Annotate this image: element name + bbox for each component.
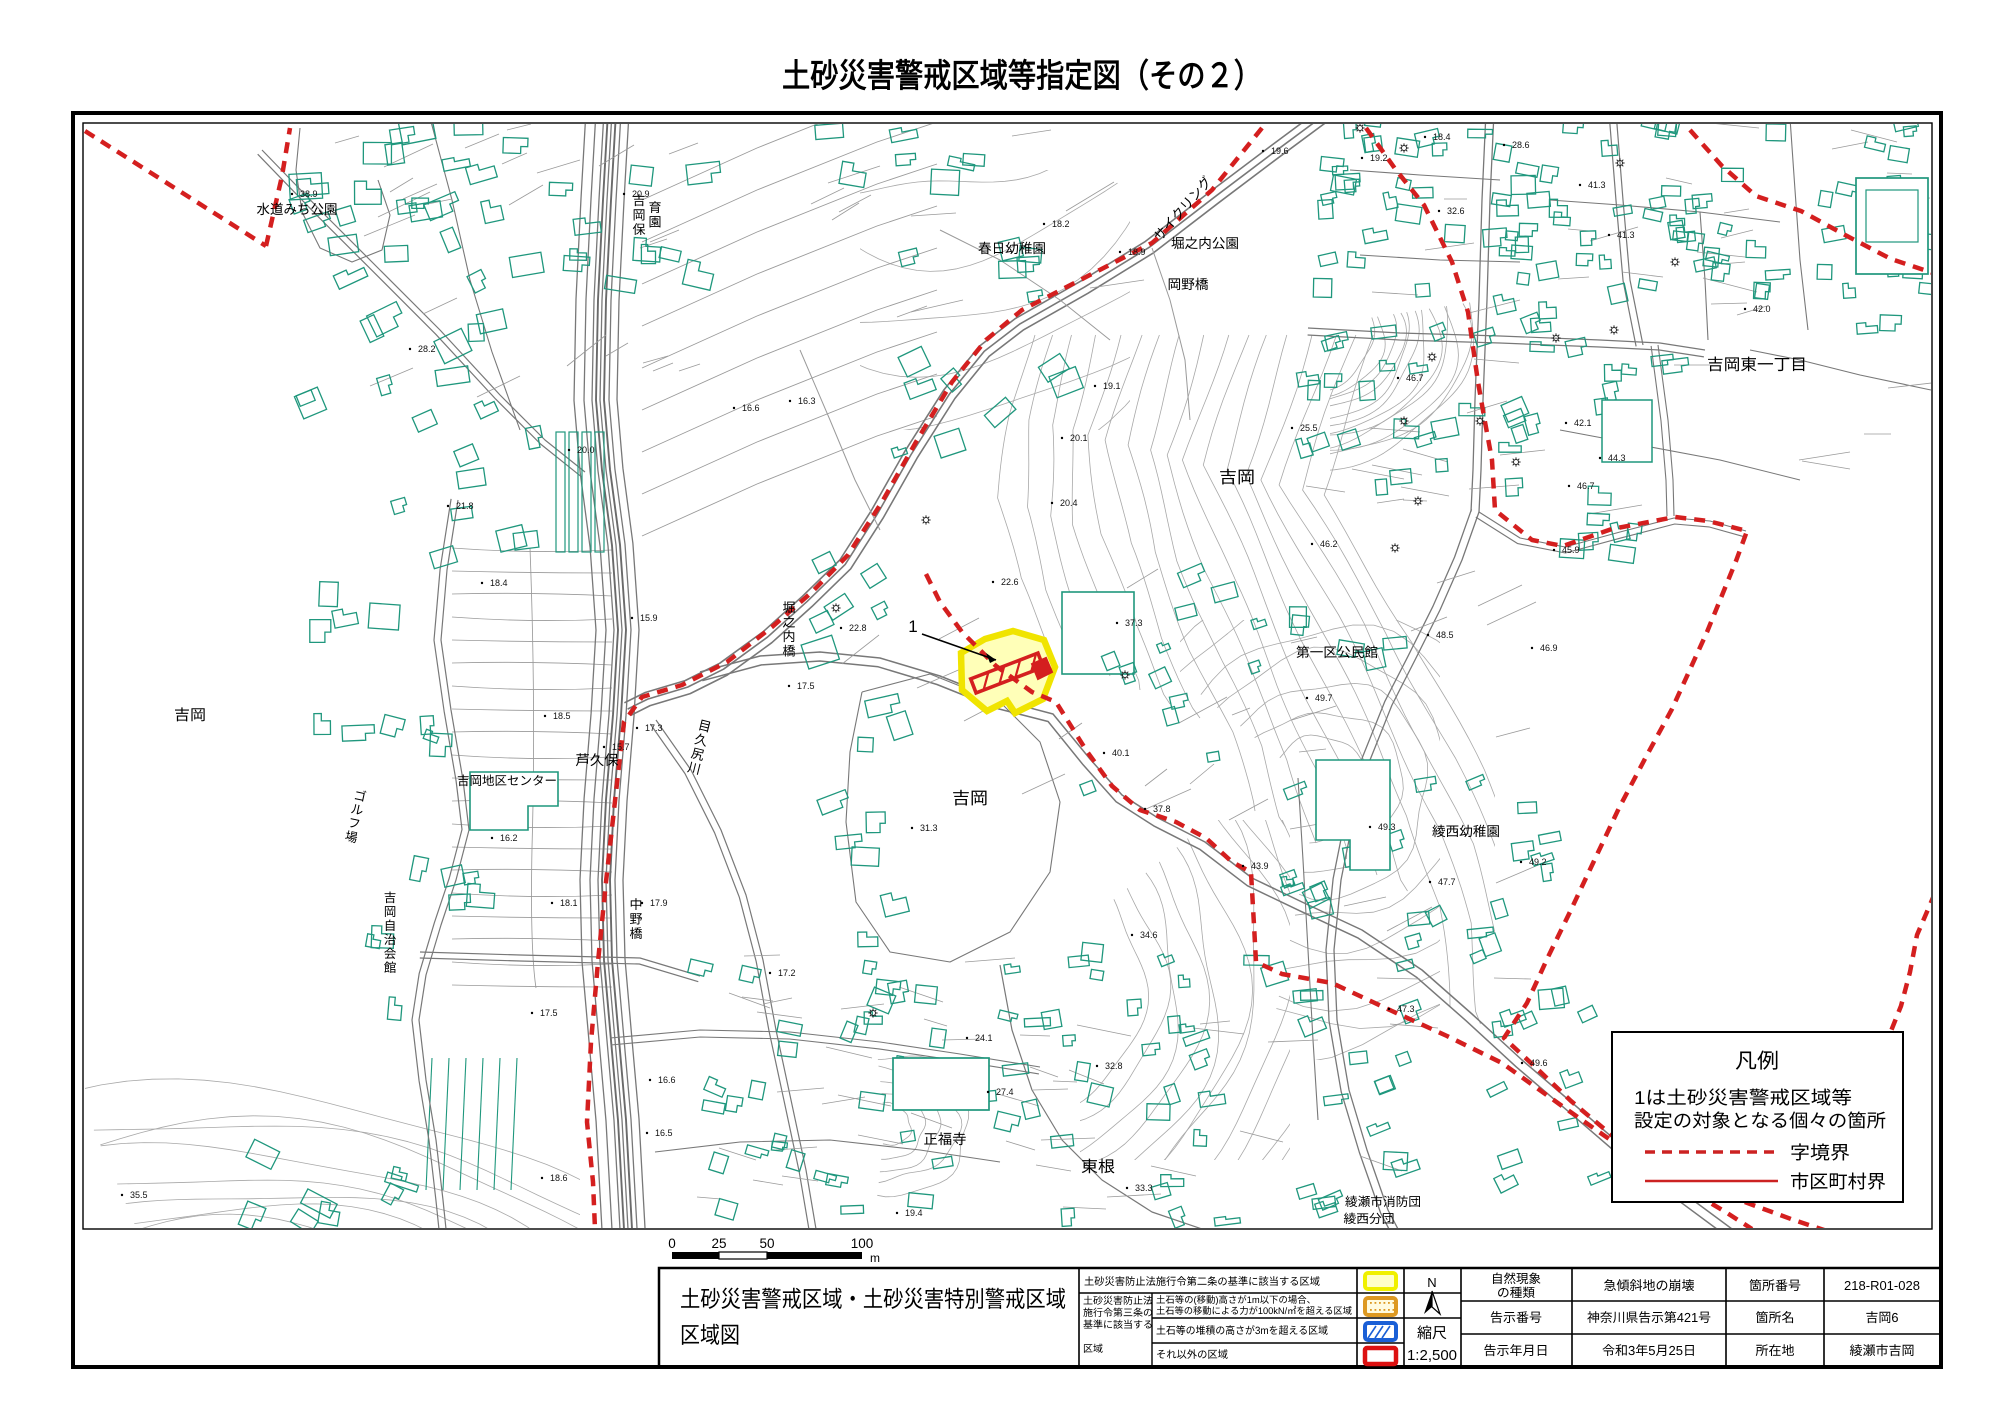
svg-text:18.4: 18.4 xyxy=(490,578,508,588)
svg-text:18.9: 18.9 xyxy=(1128,247,1146,257)
svg-text:19.2: 19.2 xyxy=(1370,153,1388,163)
svg-text:19.6: 19.6 xyxy=(1271,146,1289,156)
svg-text:17.3: 17.3 xyxy=(645,723,663,733)
svg-text:46.9: 46.9 xyxy=(1540,643,1558,653)
svg-text:43.9: 43.9 xyxy=(1251,861,1269,871)
svg-text:49.6: 49.6 xyxy=(1530,1058,1548,1068)
svg-text:24.1: 24.1 xyxy=(975,1033,993,1043)
svg-text:18.4: 18.4 xyxy=(1433,132,1451,142)
svg-text:17.2: 17.2 xyxy=(778,968,796,978)
svg-text:38.9: 38.9 xyxy=(300,189,318,199)
svg-text:41.3: 41.3 xyxy=(1588,180,1606,190)
svg-text:28.6: 28.6 xyxy=(1512,140,1530,150)
svg-text:22.8: 22.8 xyxy=(849,623,867,633)
svg-text:37.8: 37.8 xyxy=(1153,804,1171,814)
svg-text:31.3: 31.3 xyxy=(920,823,938,833)
svg-text:18.5: 18.5 xyxy=(553,711,571,721)
svg-text:0: 0 xyxy=(668,1236,676,1251)
svg-text:N: N xyxy=(1427,1275,1436,1290)
svg-text:15.7: 15.7 xyxy=(612,742,630,752)
svg-text:48.5: 48.5 xyxy=(1436,630,1454,640)
svg-text:49.7: 49.7 xyxy=(1315,693,1333,703)
svg-text:15.9: 15.9 xyxy=(640,613,658,623)
svg-text:47.7: 47.7 xyxy=(1438,877,1456,887)
svg-text:45.9: 45.9 xyxy=(1562,545,1580,555)
svg-text:34.6: 34.6 xyxy=(1140,930,1158,940)
svg-text:37.3: 37.3 xyxy=(1125,618,1143,628)
svg-text:17.5: 17.5 xyxy=(797,681,815,691)
svg-text:50: 50 xyxy=(759,1236,774,1251)
svg-text:1:2,500: 1:2,500 xyxy=(1407,1347,1457,1364)
svg-text:16.2: 16.2 xyxy=(500,833,518,843)
svg-text:42.1: 42.1 xyxy=(1574,418,1592,428)
svg-text:47.3: 47.3 xyxy=(1397,1004,1415,1014)
svg-text:19.4: 19.4 xyxy=(905,1208,923,1218)
svg-text:46.7: 46.7 xyxy=(1406,373,1424,383)
svg-text:21.8: 21.8 xyxy=(456,501,474,511)
svg-text:35.5: 35.5 xyxy=(130,1190,148,1200)
svg-text:33.3: 33.3 xyxy=(1135,1183,1153,1193)
svg-text:m: m xyxy=(870,1251,880,1265)
svg-text:32.8: 32.8 xyxy=(1105,1061,1123,1071)
svg-text:49.3: 49.3 xyxy=(1378,822,1396,832)
svg-text:218-R01-028: 218-R01-028 xyxy=(1844,1278,1920,1293)
svg-text:27.4: 27.4 xyxy=(996,1087,1014,1097)
svg-text:20.4: 20.4 xyxy=(1060,498,1078,508)
svg-text:46.7: 46.7 xyxy=(1577,481,1595,491)
svg-text:1: 1 xyxy=(908,617,917,636)
svg-text:16.5: 16.5 xyxy=(655,1128,673,1138)
svg-text:41.3: 41.3 xyxy=(1617,230,1635,240)
svg-text:19.1: 19.1 xyxy=(1103,381,1121,391)
svg-text:46.2: 46.2 xyxy=(1320,539,1338,549)
svg-text:20.1: 20.1 xyxy=(1070,433,1088,443)
svg-text:28.2: 28.2 xyxy=(418,344,436,354)
svg-text:18.1: 18.1 xyxy=(560,898,578,908)
svg-text:16.3: 16.3 xyxy=(798,396,816,406)
svg-text:18.6: 18.6 xyxy=(550,1173,568,1183)
svg-text:25.5: 25.5 xyxy=(1300,423,1318,433)
svg-text:20.0: 20.0 xyxy=(577,445,595,455)
svg-text:25: 25 xyxy=(711,1236,726,1251)
svg-text:17.9: 17.9 xyxy=(650,898,668,908)
svg-text:49.2: 49.2 xyxy=(1529,857,1547,867)
svg-text:16.6: 16.6 xyxy=(658,1075,676,1085)
svg-text:20.9: 20.9 xyxy=(632,189,650,199)
svg-text:22.6: 22.6 xyxy=(1001,577,1019,587)
svg-text:42.0: 42.0 xyxy=(1753,304,1771,314)
svg-text:100: 100 xyxy=(851,1236,874,1251)
svg-text:32.6: 32.6 xyxy=(1447,206,1465,216)
svg-text:18.2: 18.2 xyxy=(1052,219,1070,229)
svg-text:44.3: 44.3 xyxy=(1608,453,1626,463)
svg-text:40.1: 40.1 xyxy=(1112,748,1130,758)
svg-text:16.6: 16.6 xyxy=(742,403,760,413)
svg-text:17.5: 17.5 xyxy=(540,1008,558,1018)
